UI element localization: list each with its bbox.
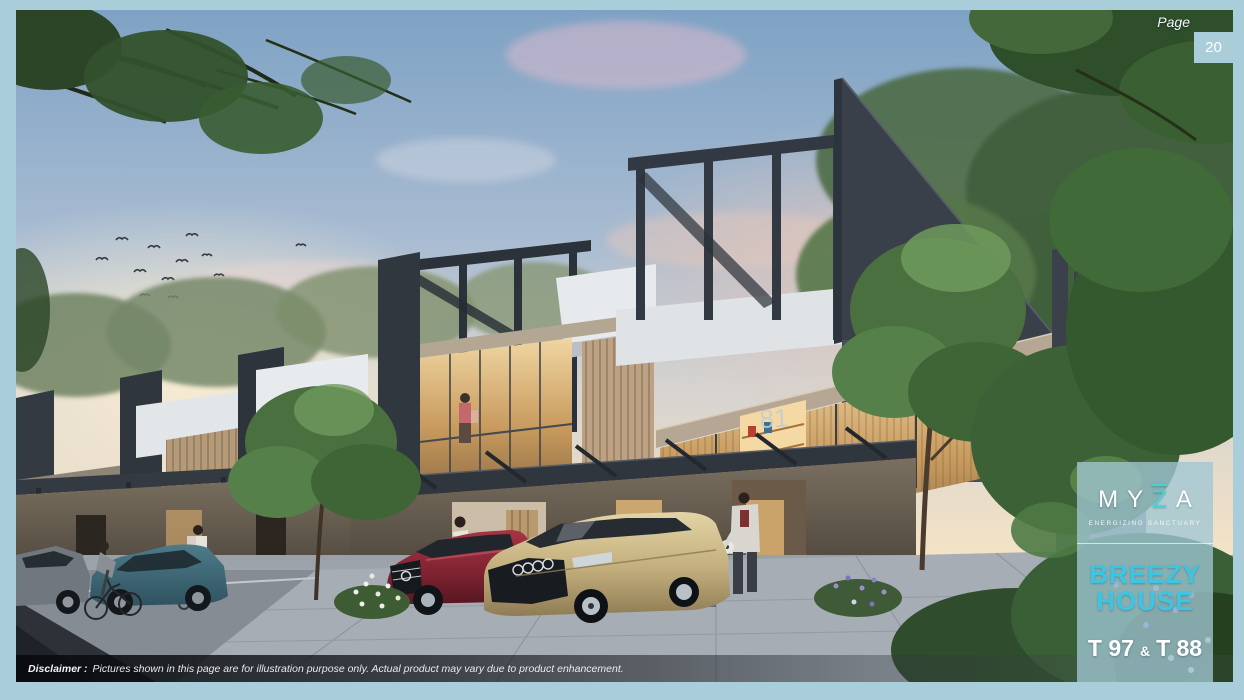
product-name-line2: HOUSE [1089, 588, 1200, 615]
architectural-render: 83 [16, 10, 1233, 682]
product-name-line1: BREEZY [1089, 561, 1200, 588]
product-name: BREEZY HOUSE [1089, 561, 1200, 614]
car-gray [16, 546, 90, 614]
page-number-badge: 20 [1194, 32, 1233, 63]
myza-logo: M Y Z A [1098, 486, 1192, 514]
disclaimer-text: Pictures shown in this page are for illu… [93, 663, 624, 675]
unit-type-right: T 88 [1156, 635, 1202, 662]
unit-types: T 97 & T 88 [1088, 635, 1202, 662]
page-number: 20 [1205, 39, 1222, 56]
logo-letter-z: Z [1152, 486, 1167, 514]
house-number-main: 81 [759, 403, 789, 434]
logo-letter-m: M [1098, 486, 1118, 514]
disclaimer-bar: Disclaimer : Pictures shown in this page… [16, 655, 1233, 682]
logo-letter-a: A [1176, 486, 1192, 514]
render-photo: 83 [16, 10, 1233, 682]
page-label: Page [1136, 14, 1190, 30]
panel-divider [1077, 543, 1213, 544]
brand-panel: M Y Z A ENERGIZING SANCTUARY BREEZY HOUS… [1077, 462, 1213, 682]
unit-type-ampersand: & [1140, 643, 1150, 659]
brand-tagline: ENERGIZING SANCTUARY [1089, 520, 1202, 527]
slide-page: 83 [0, 0, 1244, 700]
logo-letter-y: Y [1127, 486, 1143, 514]
disclaimer-label: Disclaimer : [28, 663, 88, 675]
unit-type-left: T 97 [1088, 635, 1134, 662]
